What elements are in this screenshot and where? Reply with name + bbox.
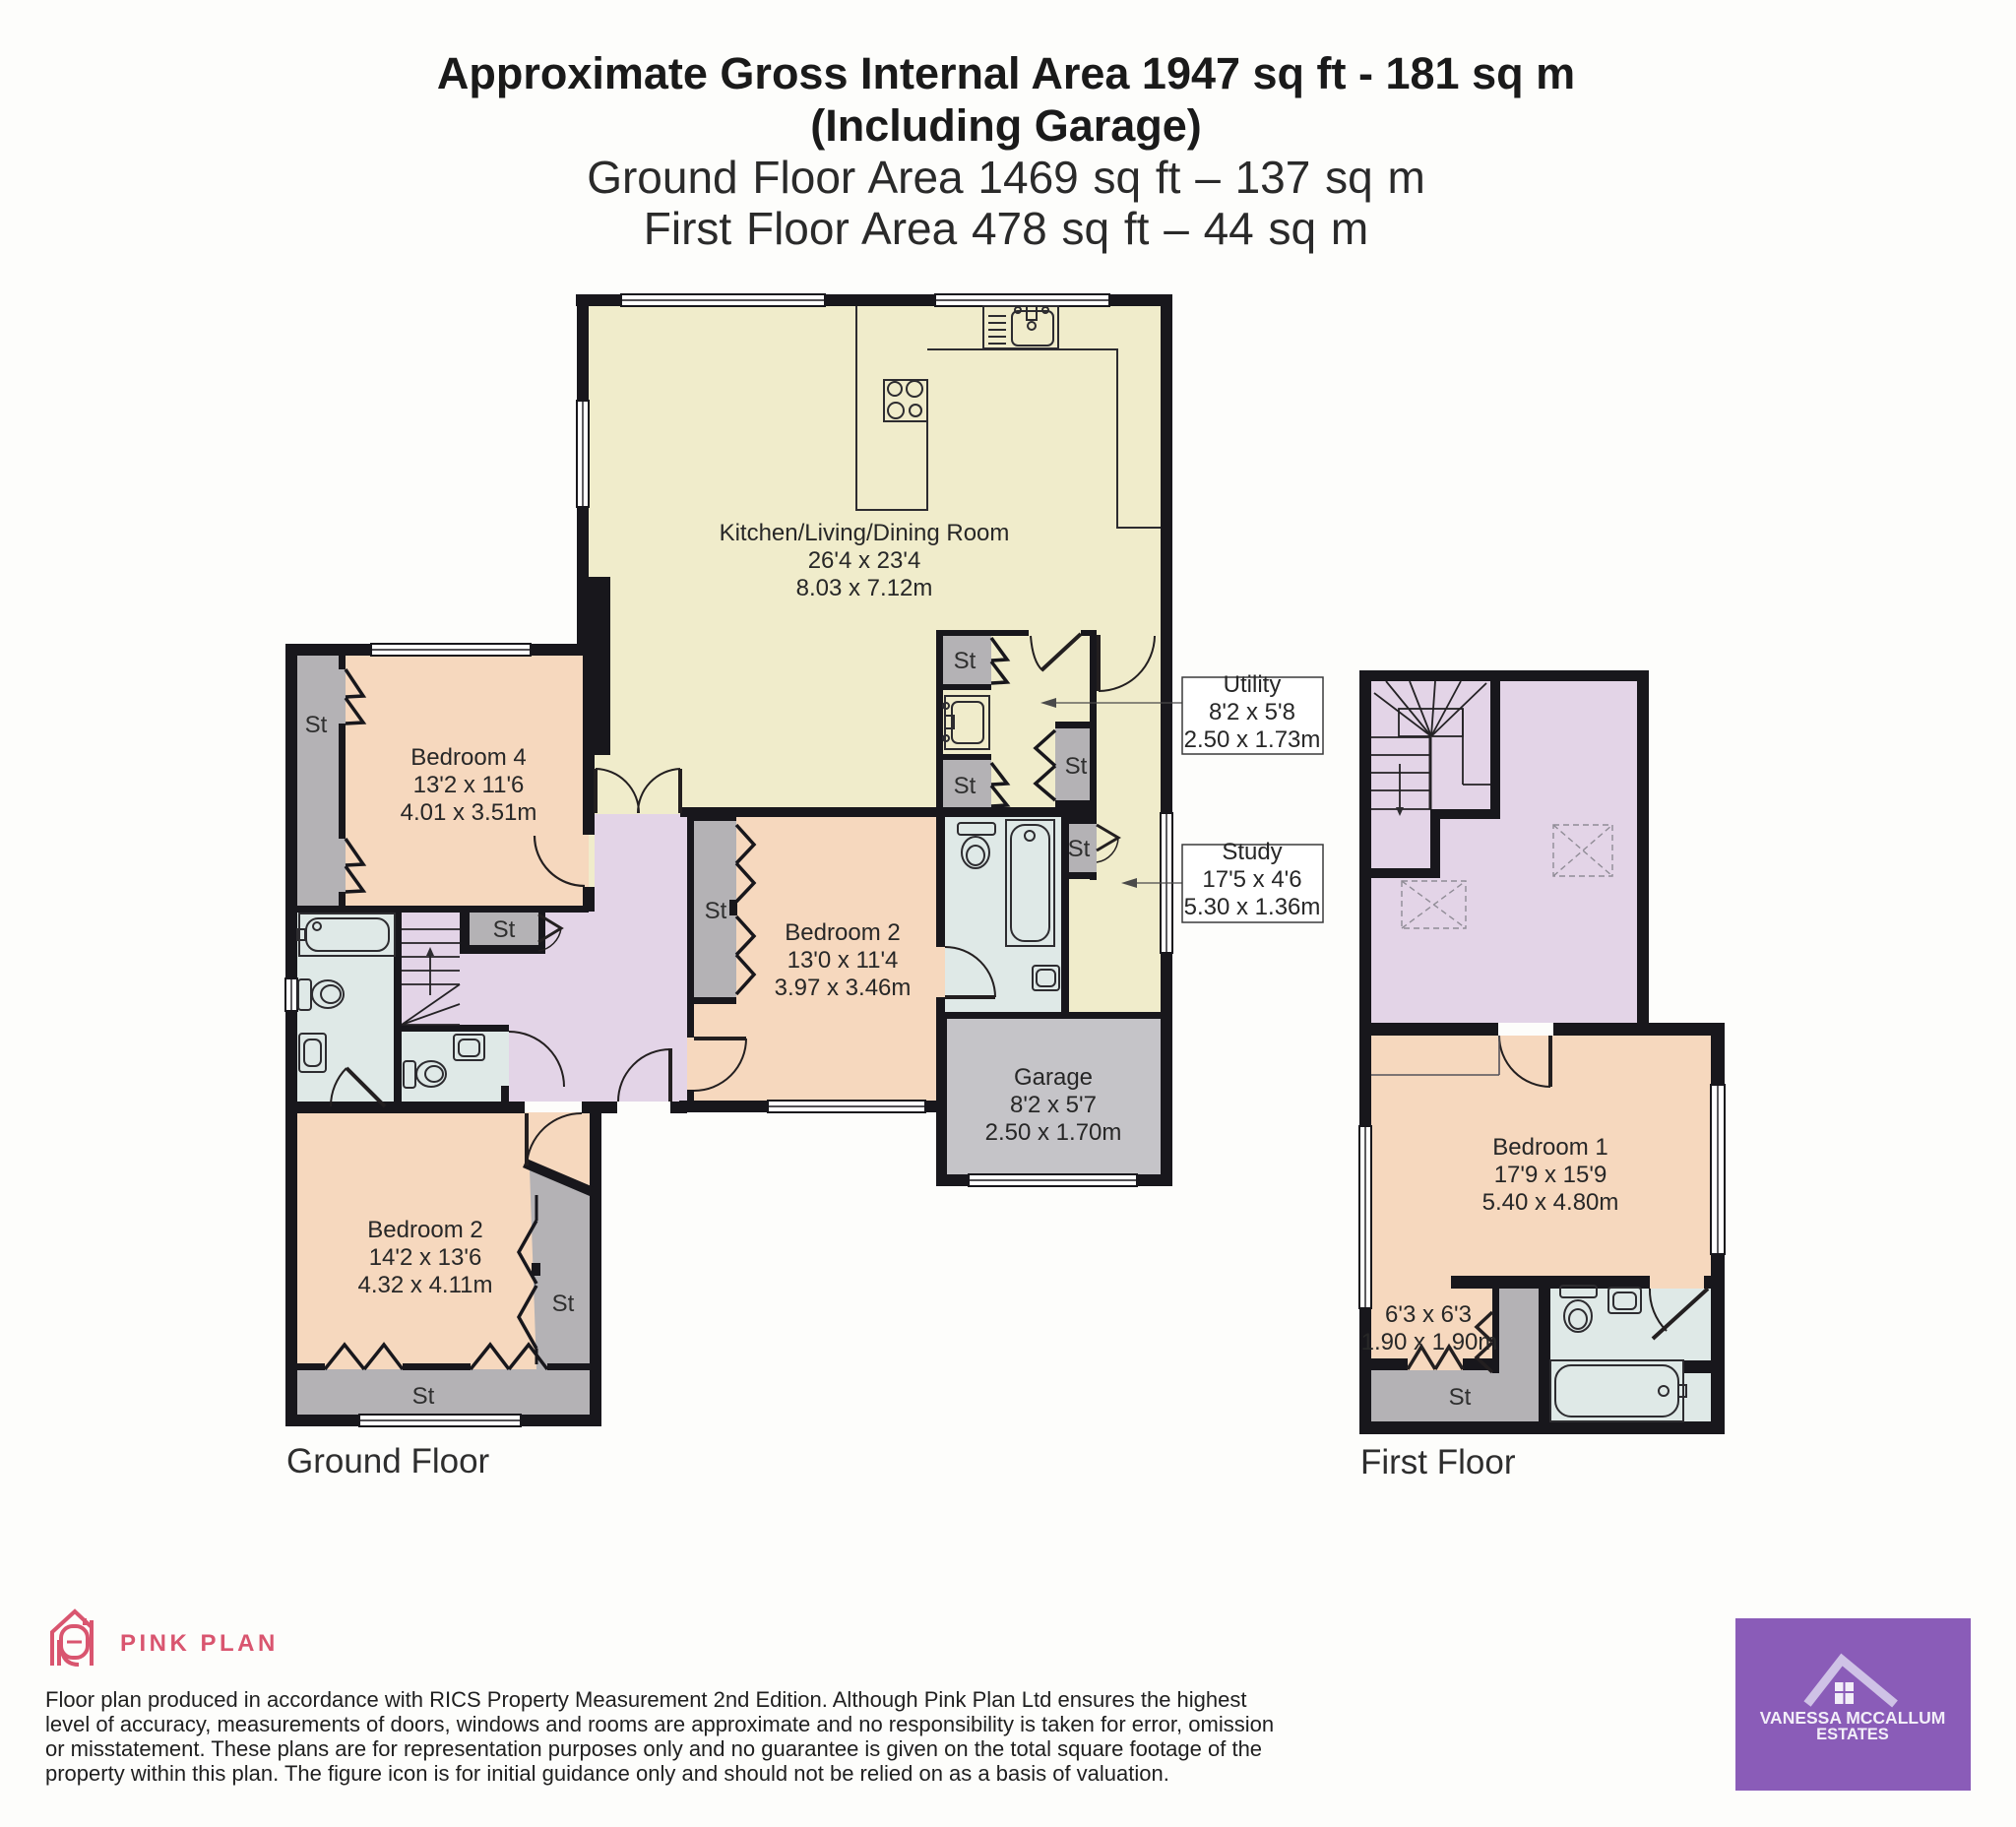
svg-text:Floor plan produced in accorda: Floor plan produced in accordance with R… bbox=[45, 1687, 1246, 1712]
svg-text:26'4 x 23'4: 26'4 x 23'4 bbox=[808, 547, 921, 574]
svg-text:Bedroom 1: Bedroom 1 bbox=[1492, 1134, 1607, 1161]
svg-text:First Floor Area 478 sq ft – 4: First Floor Area 478 sq ft – 44 sq m bbox=[644, 203, 1368, 254]
svg-text:17'5 x 4'6: 17'5 x 4'6 bbox=[1202, 866, 1301, 893]
svg-text:Bedroom 2: Bedroom 2 bbox=[367, 1217, 482, 1243]
svg-text:St: St bbox=[954, 773, 976, 799]
svg-text:3.97 x 3.46m: 3.97 x 3.46m bbox=[775, 975, 912, 1001]
svg-text:1.90 x 1.90m: 1.90 x 1.90m bbox=[1361, 1329, 1498, 1355]
svg-text:13'2 x 11'6: 13'2 x 11'6 bbox=[413, 772, 525, 798]
svg-text:14'2 x 13'6: 14'2 x 13'6 bbox=[369, 1244, 482, 1271]
svg-text:4.01 x 3.51m: 4.01 x 3.51m bbox=[401, 799, 537, 826]
svg-text:St: St bbox=[1068, 836, 1091, 862]
svg-text:St: St bbox=[493, 916, 516, 943]
svg-text:2.50 x 1.73m: 2.50 x 1.73m bbox=[1184, 726, 1321, 753]
svg-text:(Including Garage): (Including Garage) bbox=[810, 100, 1202, 151]
svg-text:5.30 x 1.36m: 5.30 x 1.36m bbox=[1184, 894, 1321, 920]
svg-text:5.40 x 4.80m: 5.40 x 4.80m bbox=[1482, 1189, 1619, 1216]
svg-text:4.32 x 4.11m: 4.32 x 4.11m bbox=[358, 1272, 493, 1298]
svg-text:level of accuracy, measurement: level of accuracy, measurements of doors… bbox=[45, 1712, 1274, 1736]
svg-text:Kitchen/Living/Dining Room: Kitchen/Living/Dining Room bbox=[720, 520, 1010, 546]
svg-text:Approximate Gross Internal Are: Approximate Gross Internal Area 1947 sq … bbox=[437, 48, 1575, 98]
svg-text:PINK PLAN: PINK PLAN bbox=[120, 1630, 279, 1657]
svg-text:Bedroom 4: Bedroom 4 bbox=[410, 744, 526, 771]
svg-text:St: St bbox=[705, 898, 727, 924]
svg-text:8'2 x 5'8: 8'2 x 5'8 bbox=[1209, 699, 1295, 725]
svg-text:Utility: Utility bbox=[1224, 671, 1282, 698]
svg-text:2.50 x 1.70m: 2.50 x 1.70m bbox=[985, 1119, 1122, 1146]
svg-text:Study: Study bbox=[1222, 839, 1282, 865]
svg-text:First Floor: First Floor bbox=[1360, 1443, 1516, 1481]
svg-text:St: St bbox=[305, 712, 328, 738]
svg-text:St: St bbox=[1065, 753, 1088, 780]
svg-text:Ground Floor: Ground Floor bbox=[286, 1442, 490, 1480]
svg-text:or misstatement. These plans a: or misstatement. These plans are for rep… bbox=[45, 1736, 1262, 1761]
svg-text:Ground Floor Area 1469 sq ft –: Ground Floor Area 1469 sq ft – 137 sq m bbox=[587, 152, 1425, 203]
svg-text:property within this plan. The: property within this plan. The figure ic… bbox=[45, 1761, 1169, 1786]
svg-text:ESTATES: ESTATES bbox=[1816, 1726, 1889, 1743]
svg-text:St: St bbox=[954, 648, 976, 674]
svg-text:St: St bbox=[412, 1383, 435, 1410]
svg-text:VANESSA MCCALLUM: VANESSA MCCALLUM bbox=[1760, 1708, 1946, 1728]
svg-text:St: St bbox=[552, 1291, 575, 1317]
svg-text:Bedroom 2: Bedroom 2 bbox=[785, 919, 900, 946]
svg-text:13'0 x 11'4: 13'0 x 11'4 bbox=[787, 947, 899, 974]
svg-text:8'2 x 5'7: 8'2 x 5'7 bbox=[1010, 1092, 1097, 1118]
svg-text:8.03 x 7.12m: 8.03 x 7.12m bbox=[796, 575, 933, 601]
svg-text:Garage: Garage bbox=[1014, 1064, 1093, 1091]
svg-text:St: St bbox=[1449, 1384, 1472, 1411]
svg-text:6'3 x 6'3: 6'3 x 6'3 bbox=[1385, 1301, 1472, 1328]
svg-text:17'9 x 15'9: 17'9 x 15'9 bbox=[1494, 1162, 1607, 1188]
